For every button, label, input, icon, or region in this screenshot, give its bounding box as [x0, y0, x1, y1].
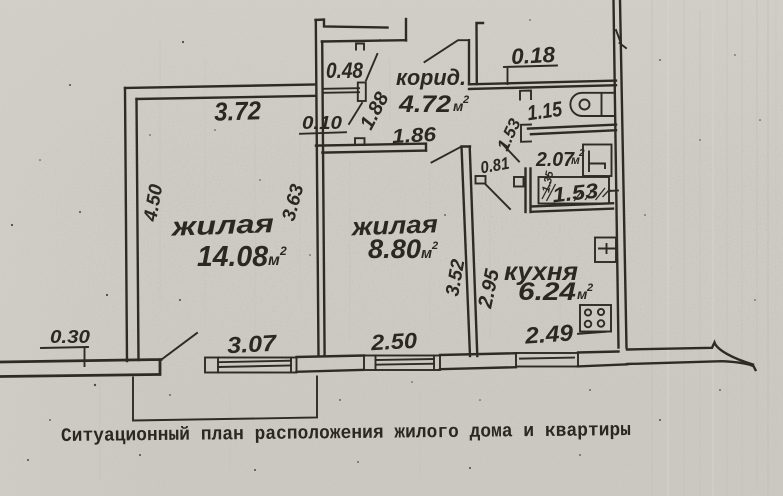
svg-text:2: 2 — [462, 94, 469, 106]
svg-text:2.07: 2.07 — [535, 149, 575, 171]
svg-text:корид.: корид. — [396, 65, 466, 90]
svg-text:0.18: 0.18 — [510, 42, 556, 69]
svg-text:жилая: жилая — [169, 208, 275, 242]
svg-text:1.15: 1.15 — [526, 98, 564, 126]
svg-text:м: м — [268, 252, 280, 269]
svg-text:0.10: 0.10 — [302, 113, 342, 133]
svg-text:4.72: 4.72 — [398, 91, 452, 118]
svg-text:14.08: 14.08 — [197, 241, 269, 273]
svg-text:м: м — [421, 245, 432, 262]
svg-text:0.30: 0.30 — [50, 327, 90, 347]
svg-text:3.72: 3.72 — [213, 95, 262, 127]
svg-text:0.48: 0.48 — [326, 58, 364, 83]
svg-text:2: 2 — [431, 240, 438, 252]
svg-text:2: 2 — [578, 148, 585, 159]
svg-text:2: 2 — [586, 282, 593, 294]
svg-text:6.24: 6.24 — [518, 278, 576, 306]
svg-text:3.07: 3.07 — [226, 330, 278, 359]
svg-text:8.80: 8.80 — [368, 234, 421, 264]
svg-text:2.50: 2.50 — [369, 328, 418, 355]
svg-text:1.53: 1.53 — [551, 180, 600, 208]
svg-text:2: 2 — [279, 244, 287, 258]
svg-text:1.86: 1.86 — [392, 124, 438, 148]
svg-text:2.49: 2.49 — [523, 319, 574, 348]
